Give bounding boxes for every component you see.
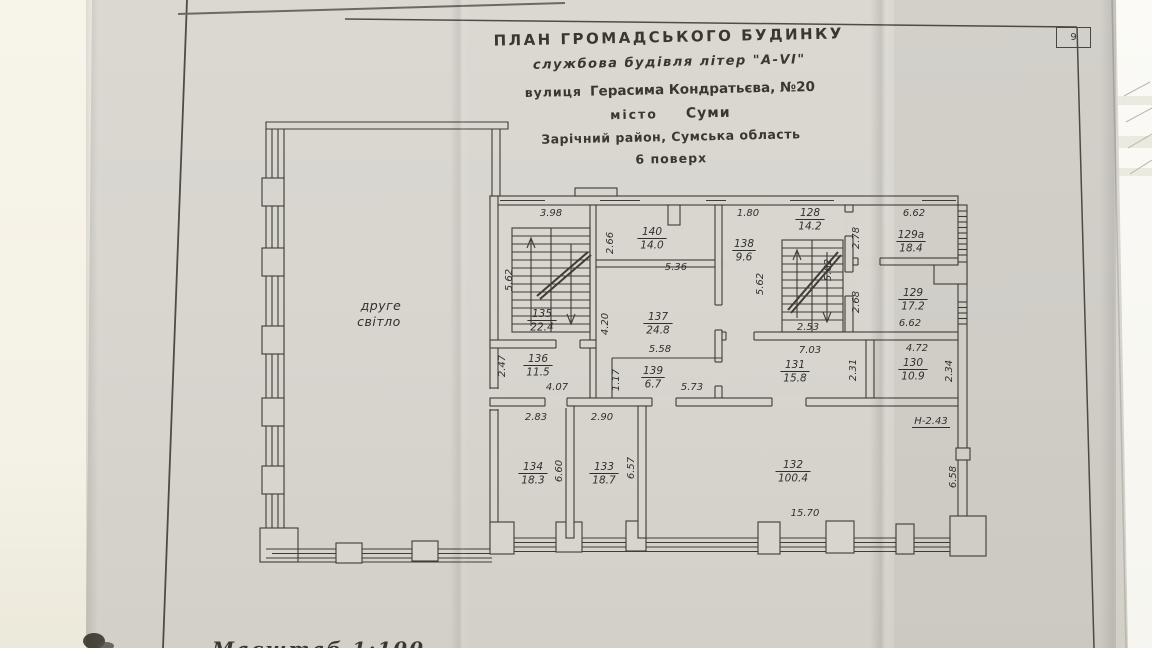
south-columns bbox=[490, 516, 986, 556]
room-area-133: 18.7 bbox=[592, 475, 616, 487]
room-area-137: 24.8 bbox=[646, 325, 670, 337]
room-area-128: 14.2 bbox=[798, 221, 822, 233]
title-block: ПЛАН ГРОМАДСЬКОГО БУДИНКУ службова будів… bbox=[487, 24, 854, 170]
room-area-139: 6.7 bbox=[645, 379, 662, 391]
dimension-6.58: 6.58 bbox=[948, 466, 959, 488]
dimension-2.53: 2.53 bbox=[797, 322, 819, 333]
dimension-2.31: 2.31 bbox=[848, 359, 859, 381]
room-area-132: 100.4 bbox=[778, 473, 808, 485]
room-area-129а: 18.4 bbox=[899, 243, 922, 255]
city-label: місто bbox=[610, 106, 658, 122]
room-number-129а: 129а bbox=[898, 229, 924, 241]
dimension-1.80: 1.80 bbox=[737, 208, 759, 219]
room-area-138: 9.6 bbox=[736, 252, 753, 264]
dimension-5.36: 5.36 bbox=[665, 262, 687, 273]
room-number-132: 132 bbox=[783, 459, 803, 471]
dimension-2.83: 2.83 bbox=[525, 412, 547, 423]
street-line: вулицяГерасима Кондратьєва, №20 bbox=[488, 75, 852, 102]
room-number-137: 137 bbox=[648, 311, 668, 323]
void-label-line1: друге bbox=[360, 298, 402, 313]
photo-artifact bbox=[83, 633, 114, 648]
street-label: вулиця bbox=[525, 84, 583, 100]
room-number-133: 133 bbox=[594, 461, 614, 473]
dimension-2.68: 2.68 bbox=[851, 291, 862, 313]
dimension-6.62: 6.62 bbox=[899, 318, 921, 329]
room-number-134: 134 bbox=[523, 461, 543, 473]
dimension-3.98: 3.98 bbox=[540, 208, 562, 219]
dimension-2.90: 2.90 bbox=[591, 412, 613, 423]
building-subtitle: службова будівля літер "А-VI" bbox=[487, 51, 851, 74]
room-number-138: 138 bbox=[734, 238, 754, 250]
left-wing-walls bbox=[260, 122, 508, 563]
dimension-2.66: 2.66 bbox=[605, 232, 616, 254]
room-number-130: 130 bbox=[903, 357, 923, 369]
district-line: Зарічний район, Сумська область bbox=[489, 125, 853, 148]
dimension-6.57: 6.57 bbox=[626, 456, 637, 479]
city-line: містоСуми bbox=[488, 99, 852, 126]
void-label-line2: світло bbox=[357, 314, 401, 329]
room-number-128: 128 bbox=[800, 207, 820, 219]
room-area-135: 22.4 bbox=[530, 322, 553, 334]
street-value: Герасима Кондратьєва, №20 bbox=[590, 79, 815, 100]
dimension-5.73: 5.73 bbox=[681, 382, 703, 393]
stair-128 bbox=[782, 240, 843, 332]
height-note: Н-2.43 bbox=[914, 416, 947, 427]
room-area-131: 15.8 bbox=[783, 373, 807, 385]
scale-caption: Масштаб 1:100 bbox=[212, 637, 425, 648]
dimension-6.60: 6.60 bbox=[554, 460, 565, 482]
dimension-5.62: 5.62 bbox=[755, 273, 766, 295]
dimension-2.34: 2.34 bbox=[944, 360, 955, 382]
dimension-1.17: 1.17 bbox=[611, 368, 622, 391]
dimension-7.03: 7.03 bbox=[799, 345, 821, 356]
ruled-paper-edge bbox=[1124, 82, 1152, 174]
dimension-4.20: 4.20 bbox=[600, 313, 611, 335]
floor-plan-photo: друге світло 13522.413611.513724.81389.6… bbox=[0, 0, 1152, 648]
dimension-5.58: 5.58 bbox=[649, 344, 671, 355]
dimension-6.62: 6.62 bbox=[903, 208, 925, 219]
room-number-129: 129 bbox=[903, 287, 923, 299]
room-area-140: 14.0 bbox=[640, 240, 664, 252]
dimension-5.62: 5.62 bbox=[823, 259, 834, 281]
room-area-134: 18.3 bbox=[521, 475, 544, 487]
room-number-135: 135 bbox=[532, 308, 552, 320]
room-number-140: 140 bbox=[642, 226, 662, 238]
interior-walls bbox=[490, 205, 958, 538]
dimension-4.72: 4.72 bbox=[906, 343, 928, 354]
dimension-2.47: 2.47 bbox=[497, 354, 508, 377]
sheet-number-box: 9 bbox=[1056, 27, 1091, 48]
dimension-4.07: 4.07 bbox=[546, 382, 569, 393]
dimension-2.78: 2.78 bbox=[851, 227, 862, 249]
room-number-139: 139 bbox=[643, 365, 663, 377]
room-area-136: 11.5 bbox=[526, 367, 550, 379]
room-area-129: 17.2 bbox=[901, 301, 925, 313]
dimension-5.62: 5.62 bbox=[504, 269, 515, 291]
room-number-131: 131 bbox=[785, 359, 805, 371]
room-area-130: 10.9 bbox=[901, 371, 925, 383]
city-value: Суми bbox=[686, 105, 731, 122]
dimension-15.70: 15.70 bbox=[791, 508, 820, 519]
room-number-136: 136 bbox=[528, 353, 548, 365]
